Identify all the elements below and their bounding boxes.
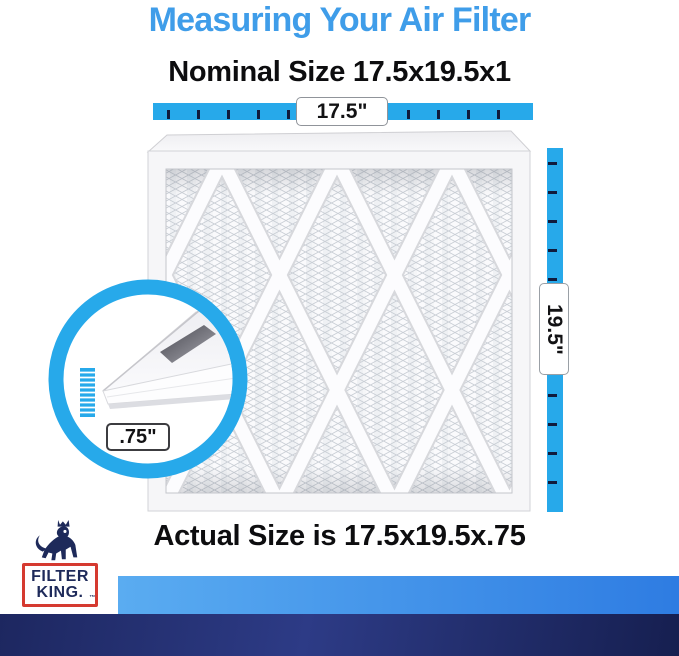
logo-line2: KING.	[31, 585, 89, 601]
width-measurement-label: 17.5"	[296, 97, 388, 126]
logo-line1: FILTER	[31, 569, 89, 585]
logo-trademark: ™	[89, 596, 96, 602]
light-blue-band	[118, 576, 679, 614]
lion-crown-icon	[28, 519, 92, 565]
filter-king-logo: FILTER KING. ™	[18, 519, 102, 607]
height-measurement-label: 19.5"	[539, 283, 569, 375]
navy-footer-bar	[0, 614, 679, 656]
filter-top-face	[148, 131, 530, 152]
depth-measurement-label: .75"	[106, 423, 170, 451]
logo-wordmark: FILTER KING. ™	[22, 563, 98, 607]
depth-ruler-icon	[80, 368, 95, 417]
product-infographic: Measuring Your Air Filter Nominal Size 1…	[0, 0, 679, 656]
